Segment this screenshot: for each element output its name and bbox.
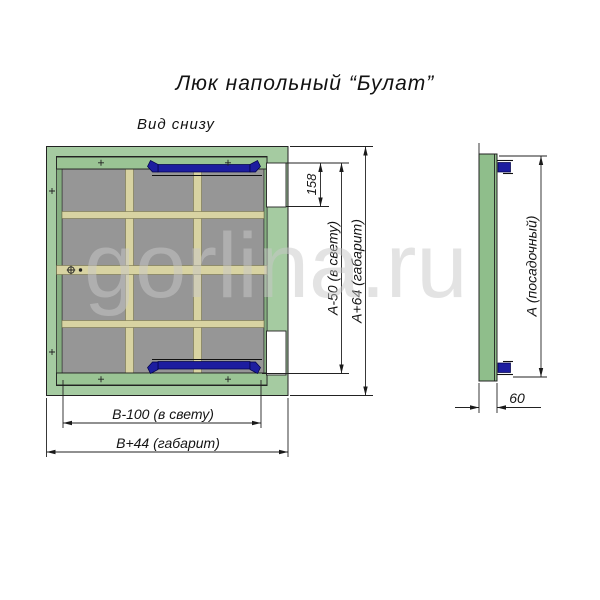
side-view: А (посадочный) 60 [455,143,547,413]
dim-width-overall: В+44 (габарит) [47,435,289,454]
dim-seat-height: А (посадочный) [524,156,544,377]
dim-label: В+44 (габарит) [116,435,220,451]
hinge-cutout-bottom [267,331,287,375]
main-view [47,147,289,396]
rail-horizontal-center [57,266,268,275]
dim-depth: 60 [455,390,541,410]
bottom-strip [57,373,268,385]
side-clip-top [497,161,513,174]
dim-height-overall: А+64 (габарит) [349,147,368,396]
hinge-cutout-top [267,163,287,207]
dim-notch-height: 158 [304,163,323,207]
dim-label: А (посадочный) [524,216,540,318]
dim-label: 60 [509,390,525,406]
dim-height-clear: А-50 (в свету) [325,163,344,374]
dim-label: В-100 (в свету) [112,406,214,422]
drawing-page: Люк напольный “Булат” Вид снизу [0,0,600,600]
dim-label: А-50 (в свету) [325,221,341,316]
technical-drawing: 158 А-50 (в свету) А+64 (габарит) [0,0,600,600]
dim-label: А+64 (габарит) [349,219,365,324]
side-clip-bottom [497,362,513,375]
rail-horizontal-1 [62,212,264,219]
dim-label: 158 [304,173,319,195]
dim-width-clear: В-100 (в свету) [63,406,261,425]
rail-horizontal-3 [62,321,264,328]
